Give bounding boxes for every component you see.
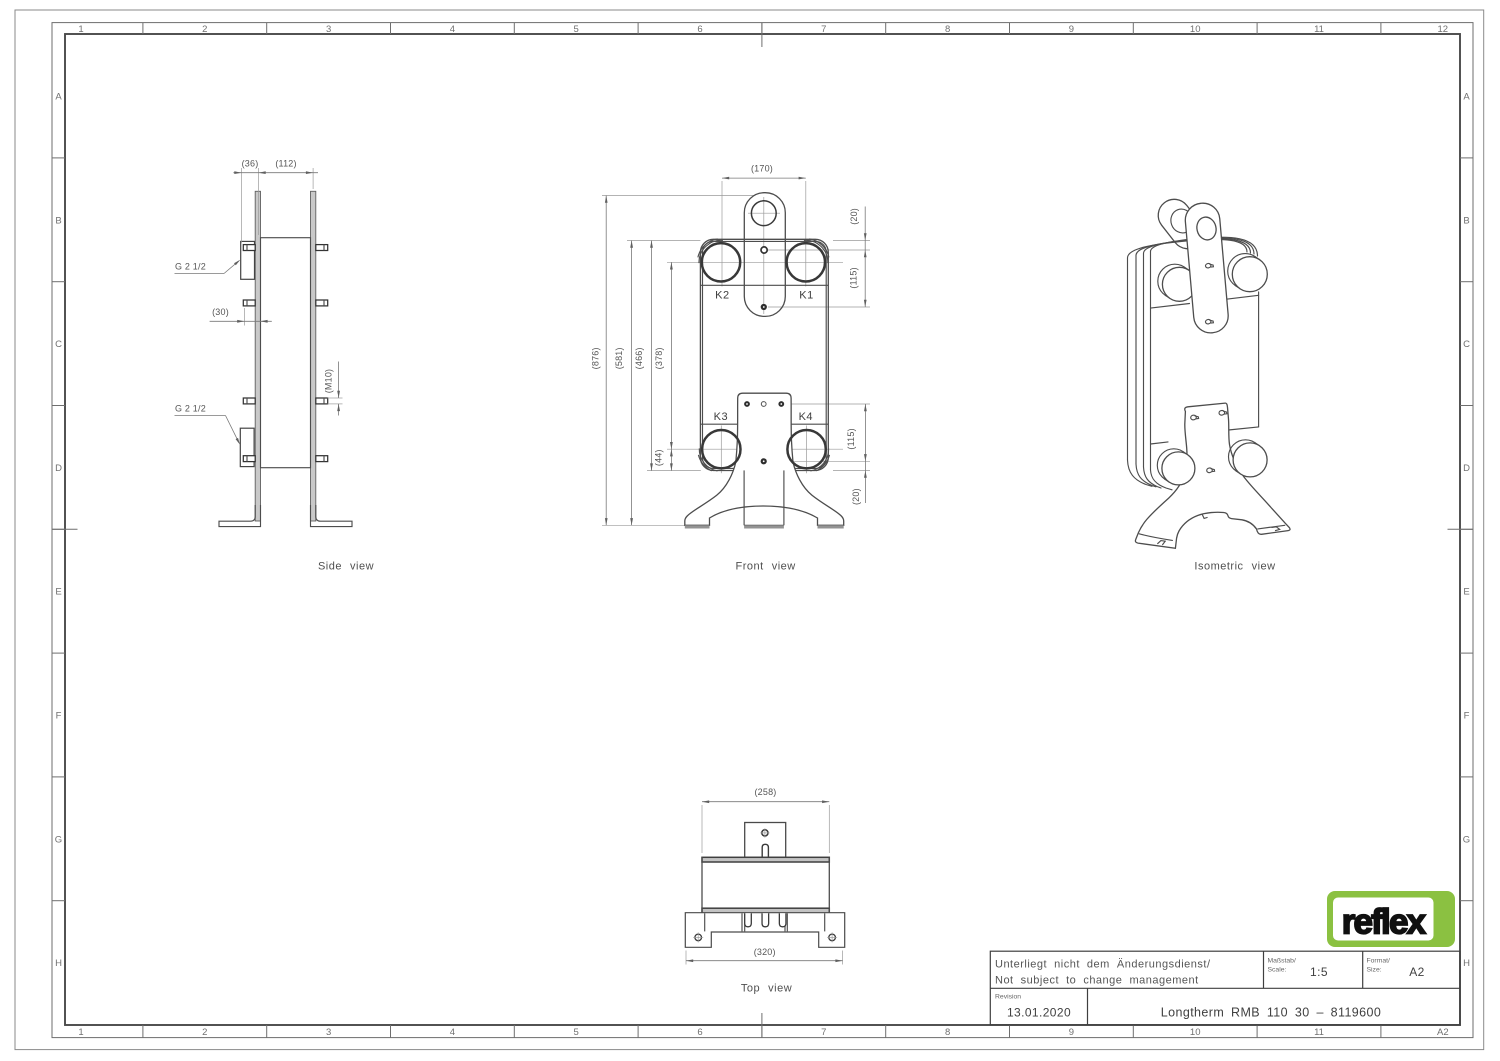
svg-text:K4: K4 [799, 411, 813, 423]
svg-text:(112): (112) [275, 159, 296, 169]
svg-text:4: 4 [450, 24, 455, 35]
svg-text:Scale:: Scale: [1268, 967, 1287, 974]
svg-text:(466): (466) [634, 347, 644, 369]
svg-text:F: F [56, 711, 62, 722]
svg-text:(258): (258) [754, 787, 776, 797]
svg-text:Side view: Side view [318, 561, 374, 573]
svg-text:Maßstab/: Maßstab/ [1268, 958, 1296, 965]
svg-text:C: C [1463, 339, 1470, 350]
svg-text:12: 12 [1438, 24, 1449, 35]
svg-text:4: 4 [450, 1027, 455, 1038]
svg-text:Size:: Size: [1367, 967, 1382, 974]
svg-text:Longtherm RMB 110 30 – 8119600: Longtherm RMB 110 30 – 8119600 [1161, 1006, 1381, 1020]
svg-text:(M10): (M10) [324, 369, 334, 394]
svg-text:2: 2 [202, 24, 207, 35]
svg-text:Unterliegt nicht dem Änderungs: Unterliegt nicht dem Änderungsdienst/ [995, 959, 1211, 971]
svg-text:(20): (20) [851, 488, 861, 505]
svg-text:Front view: Front view [735, 561, 795, 573]
svg-text:B: B [55, 215, 61, 226]
svg-text:G 2 1/2: G 2 1/2 [175, 262, 206, 272]
svg-text:13.01.2020: 13.01.2020 [1007, 1006, 1071, 1020]
svg-text:(20): (20) [849, 208, 859, 225]
svg-text:F: F [1464, 711, 1470, 722]
svg-text:(115): (115) [849, 267, 859, 288]
svg-text:(876): (876) [591, 347, 601, 369]
svg-text:1:5: 1:5 [1310, 965, 1328, 979]
svg-text:G: G [1463, 834, 1470, 845]
svg-text:C: C [55, 339, 62, 350]
svg-text:(115): (115) [846, 428, 856, 449]
svg-text:(378): (378) [654, 347, 664, 369]
svg-text:8: 8 [945, 1027, 950, 1038]
svg-text:3: 3 [326, 24, 331, 35]
svg-text:(30): (30) [212, 307, 229, 317]
svg-text:Not subject to change manageme: Not subject to change management [995, 975, 1199, 987]
svg-text:K3: K3 [714, 411, 728, 423]
svg-text:B: B [1463, 215, 1469, 226]
svg-text:H: H [55, 958, 62, 969]
svg-text:10: 10 [1190, 1027, 1201, 1038]
svg-text:9: 9 [1069, 1027, 1074, 1038]
svg-text:5: 5 [574, 24, 579, 35]
svg-text:A: A [1463, 92, 1470, 103]
svg-text:D: D [1463, 463, 1470, 474]
svg-text:(320): (320) [754, 947, 776, 957]
svg-text:A2: A2 [1437, 1027, 1449, 1038]
svg-text:11: 11 [1314, 24, 1324, 35]
svg-text:(170): (170) [751, 164, 773, 174]
svg-text:5: 5 [574, 1027, 579, 1038]
svg-text:G: G [55, 834, 62, 845]
svg-text:10: 10 [1190, 24, 1201, 35]
svg-text:Top view: Top view [741, 983, 792, 995]
svg-text:7: 7 [821, 1027, 826, 1038]
svg-text:K1: K1 [799, 289, 813, 301]
svg-text:Format/: Format/ [1367, 958, 1391, 965]
svg-text:A2: A2 [1409, 965, 1424, 979]
svg-text:7: 7 [821, 24, 826, 35]
svg-text:1: 1 [78, 24, 83, 35]
svg-text:(581): (581) [614, 347, 624, 369]
svg-text:3: 3 [326, 1027, 331, 1038]
svg-text:1: 1 [78, 1027, 83, 1038]
svg-text:K2: K2 [715, 289, 729, 301]
svg-text:9: 9 [1069, 24, 1074, 35]
svg-text:reflex: reflex [1342, 903, 1427, 942]
svg-text:6: 6 [697, 24, 702, 35]
svg-text:E: E [55, 587, 61, 598]
svg-text:11: 11 [1314, 1027, 1324, 1038]
svg-text:2: 2 [202, 1027, 207, 1038]
svg-text:D: D [55, 463, 62, 474]
svg-text:(44): (44) [653, 449, 663, 466]
svg-text:6: 6 [697, 1027, 702, 1038]
svg-text:Isometric view: Isometric view [1194, 561, 1275, 573]
svg-text:(36): (36) [242, 159, 259, 169]
svg-text:A: A [55, 92, 62, 103]
svg-text:G 2 1/2: G 2 1/2 [175, 404, 206, 414]
svg-text:H: H [1463, 958, 1470, 969]
svg-text:E: E [1463, 587, 1469, 598]
svg-text:Revision: Revision [995, 994, 1021, 1001]
svg-text:8: 8 [945, 24, 950, 35]
